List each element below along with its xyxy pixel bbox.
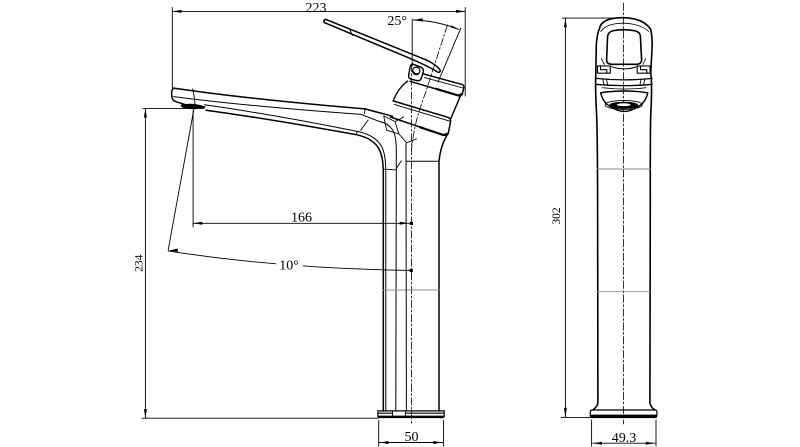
svg-text:10°: 10°: [279, 258, 299, 273]
svg-text:234: 234: [133, 254, 145, 272]
svg-text:25°: 25°: [387, 14, 407, 29]
svg-text:49.3: 49.3: [612, 431, 637, 446]
svg-text:302: 302: [551, 207, 563, 225]
svg-text:223: 223: [306, 1, 327, 16]
svg-text:50: 50: [405, 430, 419, 445]
svg-text:166: 166: [291, 211, 312, 226]
